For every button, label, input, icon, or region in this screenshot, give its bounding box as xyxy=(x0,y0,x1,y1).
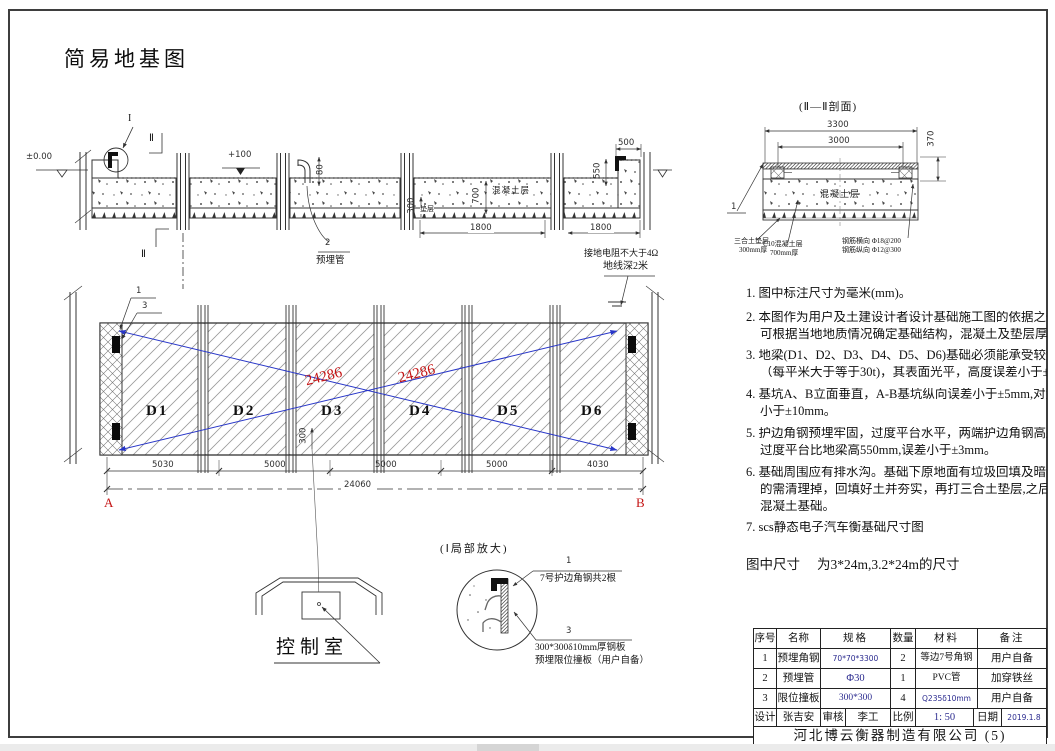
plan-total-dim: 24060 xyxy=(341,481,374,490)
level-plus100-label: +100 xyxy=(228,151,251,160)
dim-depth-700: 700 xyxy=(472,188,481,204)
note-6-line3: 混凝土基础。 xyxy=(760,500,835,514)
size-note-label: 图中尺寸 xyxy=(746,558,800,573)
date-value: 2019.1.8 xyxy=(1002,709,1046,727)
bom-header-row: 序号 名称 规格 数量 材料 备注 xyxy=(754,629,1046,649)
bom-row-3: 3 限位撞板 300*300 4 Q235δ10mm 用户自备 xyxy=(754,689,1046,709)
leader-rebar-line1: 钢筋横向 Φ18@200 xyxy=(842,238,901,246)
detail-i-title: (Ⅰ局部放大) xyxy=(440,543,509,555)
bom-cell: 加穿铁丝 xyxy=(978,669,1046,689)
bom-cell: 70*70*3300 xyxy=(821,649,891,669)
design-label: 设计 xyxy=(754,709,777,727)
slab-label-d4: D4 xyxy=(409,403,431,420)
detail-callout-3: 3 xyxy=(566,627,571,636)
note-3-line2: （每平米大于等于30t)，其表面光平，高度误差小于±3mm。 xyxy=(760,366,1047,380)
plan-seg-dim-3: 5000 xyxy=(375,461,397,470)
leader-rebar-line2: 钢筋纵向 Φ12@300 xyxy=(842,247,901,255)
date-label: 日期 xyxy=(974,709,1002,727)
check-label: 审核 xyxy=(821,709,846,727)
dim-pipe-80: 80 xyxy=(317,164,326,175)
scale-value: 1: 50 xyxy=(916,709,974,727)
plan-dim-300: 300 xyxy=(299,428,308,444)
slab-label-d5: D5 xyxy=(497,403,519,420)
bom-header-seq: 序号 xyxy=(754,629,777,649)
dim-cushion-300: 300 xyxy=(407,198,416,214)
bom-header-spec: 规格 xyxy=(821,629,891,649)
title-block-table: 序号 名称 规格 数量 材料 备注 1 预埋角钢 70*70*3300 2 等边… xyxy=(753,628,1047,745)
slab-label-d6: D6 xyxy=(581,403,603,420)
bom-cell: 等边7号角钢 xyxy=(916,649,978,669)
note-2-line1: 2. 本图作为用户及土建设计者设计基础施工图的依据之一，用户 xyxy=(746,311,1047,325)
section-marker-ii-top: Ⅱ xyxy=(149,133,154,144)
callout-pipe-label: 预埋管 xyxy=(316,256,345,266)
note-6-line2: 的需清理掉，回填好土并夯实，再打三合土垫层,之后再浇注 xyxy=(760,483,1047,497)
bom-cell: 2 xyxy=(891,649,916,669)
bom-header-name: 名称 xyxy=(777,629,821,649)
bom-cell: 4 xyxy=(891,689,916,709)
note-1: 1. 图中标注尺寸为毫米(mm)。 xyxy=(746,287,911,301)
note-2-line2: 可根据当地地质情况确定基础结构，混凝土及垫层厚度仅供参 xyxy=(760,328,1047,342)
bom-row-1: 1 预埋角钢 70*70*3300 2 等边7号角钢 用户自备 xyxy=(754,649,1046,669)
leader-c10-line1: C10混凝土层 xyxy=(763,241,803,249)
size-note-value: 为3*24m,3.2*24m的尺寸 xyxy=(817,558,960,573)
bom-cell: 1 xyxy=(891,669,916,689)
plan-seg-dim-4: 5000 xyxy=(486,461,508,470)
bom-cell: 用户自备 xyxy=(978,689,1046,709)
bom-header-qty: 数量 xyxy=(891,629,916,649)
scale-label: 比例 xyxy=(891,709,916,727)
slab-label-d1: D1 xyxy=(146,403,168,420)
check-value: 李工 xyxy=(846,709,891,727)
leader-c10-line2: 700mm厚 xyxy=(770,250,798,258)
page-title: 简易地基图 xyxy=(64,48,189,71)
note-4-line2: 小于±10mm。 xyxy=(760,405,836,419)
detail-label-3-line1: 300*300δ10mm厚钢板 xyxy=(535,643,626,653)
note-4-line1: 4. 基坑A、B立面垂直，A-B基坑纵向误差小于±5mm,对角线误差 xyxy=(746,388,1047,402)
drawing-page: 简易地基图 I Ⅱ Ⅱ ±0.00 +100 80 2 预埋管 700 混凝土层… xyxy=(0,0,1055,751)
bom-row-2: 2 预埋管 Φ30 1 PVC管 加穿铁丝 xyxy=(754,669,1046,689)
concrete-layer-label-top: 混凝土层 xyxy=(492,186,530,195)
corner-label-b: B xyxy=(636,496,645,510)
bom-cell: 预埋管 xyxy=(777,669,821,689)
detail-label-3-line2: 预埋限位撞板（用户自备） xyxy=(535,656,649,666)
plan-callout-1: 1 xyxy=(136,287,141,296)
bom-cell: PVC管 xyxy=(916,669,978,689)
bom-cell: 用户自备 xyxy=(978,649,1046,669)
section-ii-dim-370: 370 xyxy=(927,131,936,147)
section-ii-dim-3300: 3300 xyxy=(827,121,849,130)
note-6-line1: 6. 基础周围应有排水沟。基础下原地面有垃圾回填及暗沟、暗管 xyxy=(746,466,1047,480)
control-room-label: 控制室 xyxy=(276,638,348,659)
section-ii-callout-1: 1 xyxy=(731,203,736,212)
bom-cell: 300*300 xyxy=(821,689,891,709)
section-marker-ii-bottom: Ⅱ xyxy=(141,249,146,260)
design-value: 张吉安 xyxy=(777,709,821,727)
level-zero-label: ±0.00 xyxy=(26,153,52,162)
dim-end-550: 550 xyxy=(593,163,602,179)
ground-note-line1: 接地电阻不大于4Ω xyxy=(584,249,658,259)
detail-label-1: 7号护边角钢共2根 xyxy=(540,574,616,584)
bom-cell: 预埋角钢 xyxy=(777,649,821,669)
company-name: 河北博云衡器制造有限公司 (5) xyxy=(754,727,1046,744)
ground-note-line2: 地线深2米 xyxy=(603,261,648,272)
plan-seg-dim-1: 5030 xyxy=(152,461,174,470)
plan-seg-dim-5: 4030 xyxy=(587,461,609,470)
section-ii-dim-3000: 3000 xyxy=(828,137,850,146)
callout-pipe-number: 2 xyxy=(325,239,330,248)
plan-seg-dim-2: 5000 xyxy=(264,461,286,470)
bom-cell: 2 xyxy=(754,669,777,689)
bom-cell: 3 xyxy=(754,689,777,709)
slab-label-d2: D2 xyxy=(233,403,255,420)
note-7: 7. scs静态电子汽车衡基础尺寸图 xyxy=(746,521,924,535)
dim-bay-1800-b: 1800 xyxy=(588,224,614,233)
concrete-layer-label-section: 混凝土层 xyxy=(820,190,860,200)
horizontal-scrollbar-thumb[interactable] xyxy=(477,744,539,751)
note-5-line2: 过度平台比地梁高550mm,误差小于±3mm。 xyxy=(760,444,996,458)
bom-cell: 1 xyxy=(754,649,777,669)
slab-label-d3: D3 xyxy=(321,403,343,420)
cushion-layer-label: 垫层 xyxy=(420,206,434,214)
corner-label-a: A xyxy=(104,496,113,510)
plan-callout-3: 3 xyxy=(142,302,147,311)
dim-end-500: 500 xyxy=(618,139,634,148)
detail-callout-1: 1 xyxy=(566,557,571,566)
bom-cell: Q235δ10mm xyxy=(916,689,978,709)
section-marker-i: I xyxy=(128,113,131,124)
bom-cell: 限位撞板 xyxy=(777,689,821,709)
bom-header-remark: 备注 xyxy=(978,629,1046,649)
bom-cell: Φ30 xyxy=(821,669,891,689)
bom-header-material: 材料 xyxy=(916,629,978,649)
bom-footer-row: 设计 张吉安 审核 李工 比例 1: 50 日期 2019.1.8 xyxy=(754,709,1046,727)
note-3-line1: 3. 地梁(D1、D2、D3、D4、D5、D6)基础必须能承受较大的冲击和, xyxy=(746,349,1047,363)
note-5-line1: 5. 护边角钢预埋牢固，过度平台水平，两端护边角钢高度差<4mm xyxy=(746,427,1047,441)
dim-bay-1800-a: 1800 xyxy=(468,224,494,233)
section-ii-title: (Ⅱ—Ⅱ剖面) xyxy=(799,101,857,113)
